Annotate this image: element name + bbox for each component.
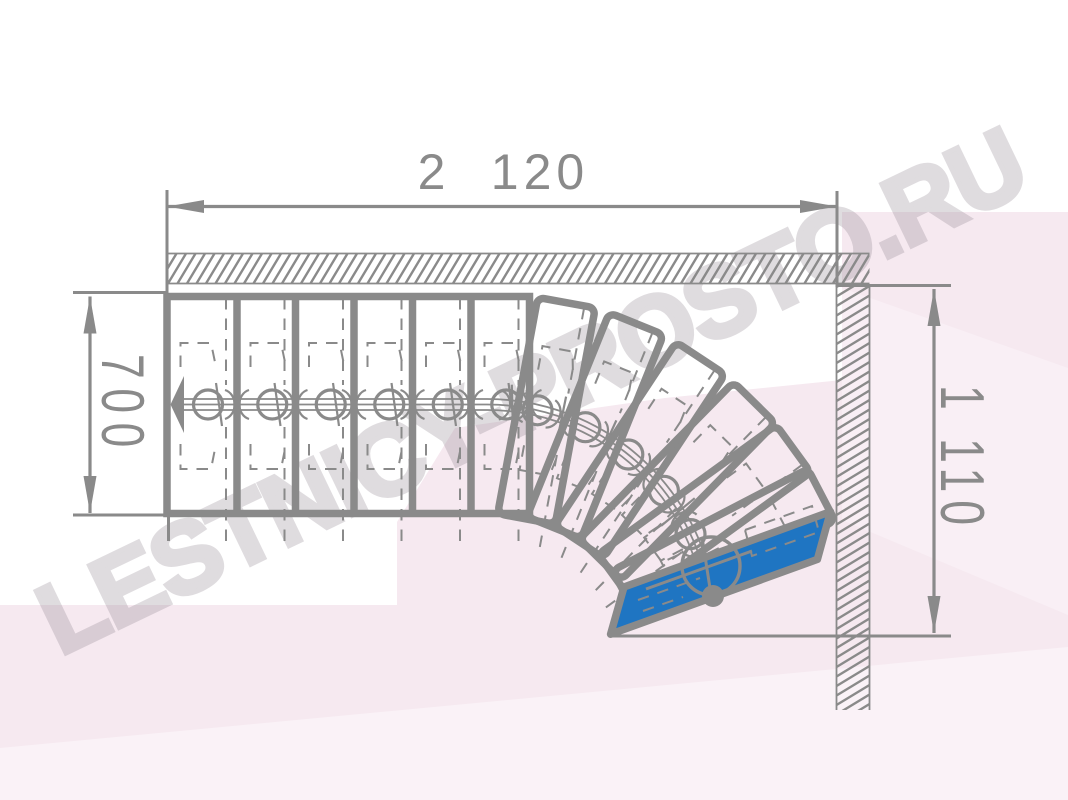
svg-text:2: 2 (418, 144, 451, 200)
svg-text:120: 120 (491, 144, 589, 200)
svg-text:700: 700 (88, 354, 155, 457)
svg-text:1 110: 1 110 (927, 385, 996, 533)
